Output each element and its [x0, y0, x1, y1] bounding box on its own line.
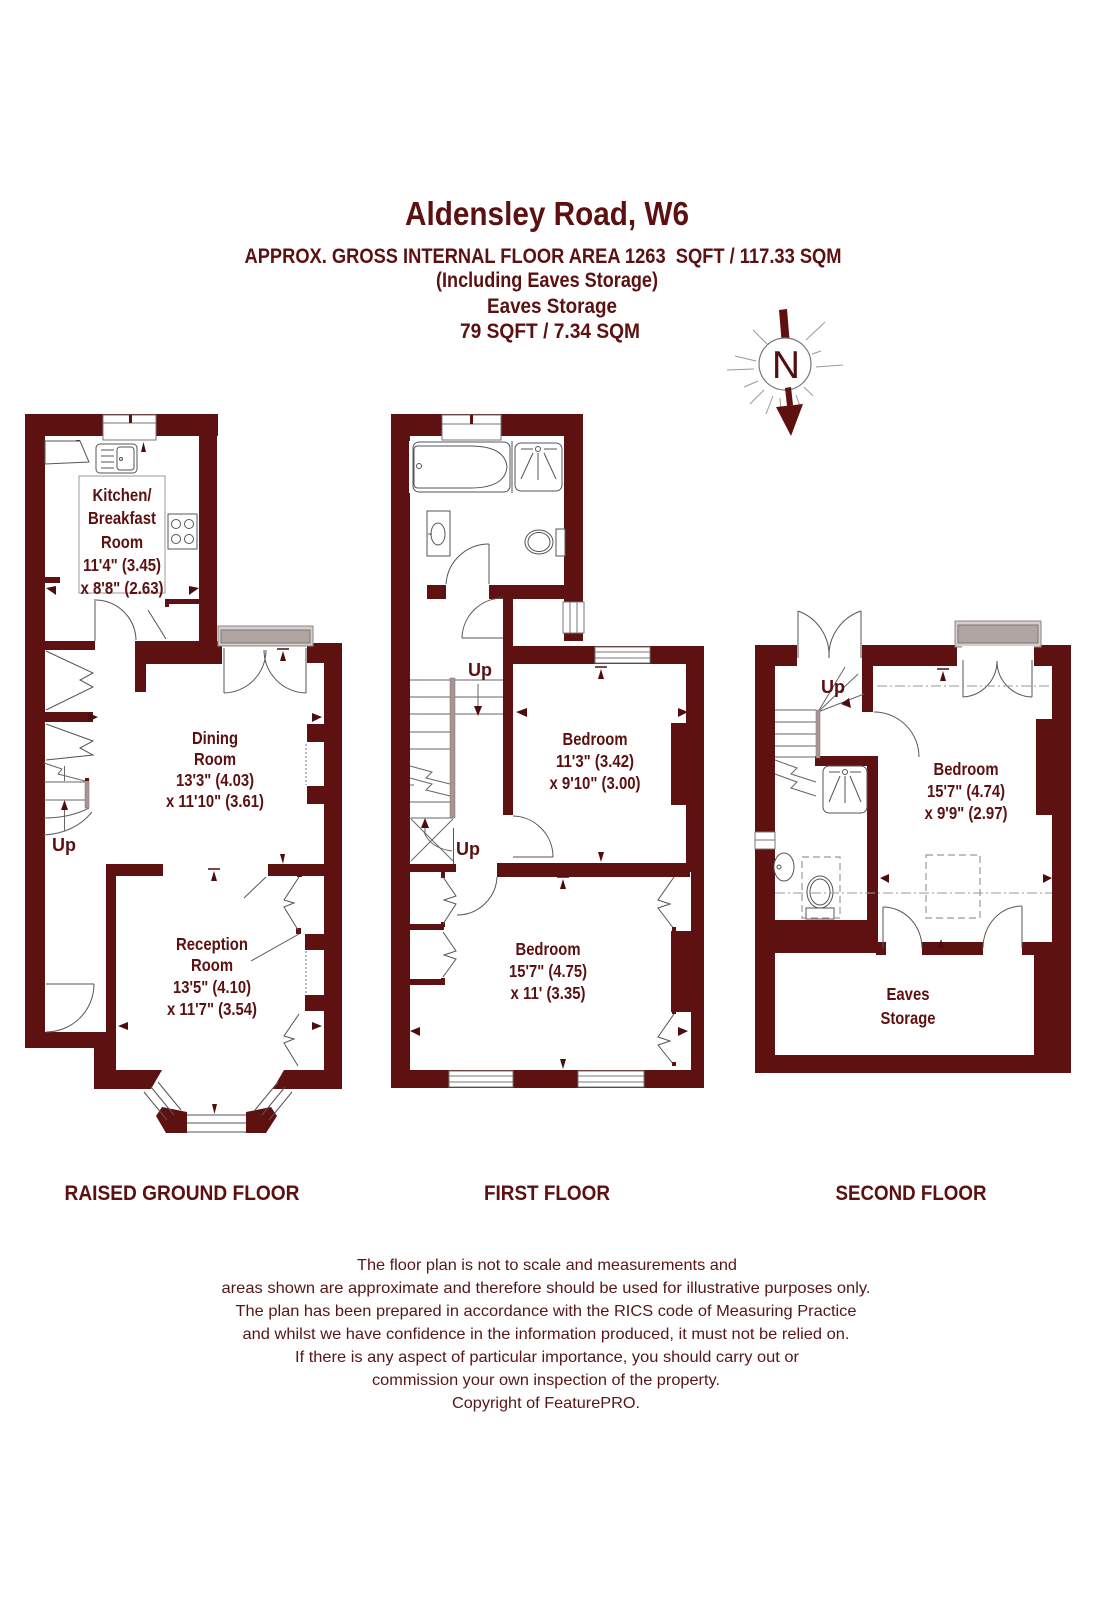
svg-text:Up: Up [468, 660, 492, 680]
svg-text:Eaves Storage: Eaves Storage [487, 295, 617, 318]
svg-text:Storage: Storage [881, 1008, 936, 1028]
svg-text:and whilst we have confidence: and whilst we have confidence in the inf… [243, 1326, 850, 1343]
svg-text:Up: Up [456, 839, 480, 859]
svg-text:APPROX. GROSS INTERNAL FLOOR A: APPROX. GROSS INTERNAL FLOOR AREA 1263 S… [245, 245, 842, 268]
svg-text:79 SQFT / 7.34 SQM: 79 SQFT / 7.34 SQM [460, 320, 640, 343]
svg-text:Dining: Dining [192, 728, 238, 748]
svg-text:Up: Up [52, 835, 76, 855]
svg-text:x 9'10" (3.00): x 9'10" (3.00) [550, 773, 641, 793]
svg-text:x 9'9" (2.97): x 9'9" (2.97) [925, 803, 1008, 823]
svg-text:x 11'7" (3.54): x 11'7" (3.54) [167, 999, 257, 1019]
svg-text:11'4" (3.45): 11'4" (3.45) [83, 555, 161, 575]
svg-text:Bedroom: Bedroom [516, 939, 581, 959]
svg-text:The plan has been prepared in: The plan has been prepared in accordance… [236, 1303, 857, 1320]
svg-text:Reception: Reception [176, 934, 248, 954]
svg-text:The floor plan is not to scale: The floor plan is not to scale and measu… [357, 1257, 737, 1274]
svg-text:SECOND FLOOR: SECOND FLOOR [836, 1182, 987, 1205]
svg-text:commission your own inspection: commission your own inspection of the pr… [372, 1372, 720, 1389]
svg-text:15'7" (4.75): 15'7" (4.75) [509, 961, 587, 981]
svg-text:x 11'10" (3.61): x 11'10" (3.61) [166, 791, 264, 811]
svg-text:Bedroom: Bedroom [563, 729, 628, 749]
svg-text:11'3" (3.42): 11'3" (3.42) [556, 751, 634, 771]
svg-text:Copyright of FeaturePRO.: Copyright of FeaturePRO. [452, 1395, 640, 1412]
svg-text:x 8'8" (2.63): x 8'8" (2.63) [81, 578, 164, 598]
svg-text:RAISED GROUND FLOOR: RAISED GROUND FLOOR [65, 1182, 300, 1205]
svg-text:Eaves: Eaves [887, 984, 930, 1004]
svg-text:areas shown are approximate an: areas shown are approximate and therefor… [222, 1280, 871, 1297]
svg-text:FIRST FLOOR: FIRST FLOOR [484, 1182, 610, 1205]
svg-text:Up: Up [821, 677, 845, 697]
svg-text:x 11' (3.35): x 11' (3.35) [511, 983, 586, 1003]
svg-text:13'5" (4.10): 13'5" (4.10) [173, 977, 251, 997]
svg-text:If there is any aspect of part: If there is any aspect of particular imp… [295, 1349, 800, 1366]
svg-text:Aldensley Road, W6: Aldensley Road, W6 [405, 195, 689, 232]
svg-text:Kitchen/: Kitchen/ [93, 485, 152, 505]
svg-text:Room: Room [194, 749, 236, 769]
svg-text:Room: Room [191, 955, 233, 975]
svg-text:15'7" (4.74): 15'7" (4.74) [927, 781, 1005, 801]
svg-text:Room: Room [101, 532, 143, 552]
svg-text:Bedroom: Bedroom [934, 759, 999, 779]
svg-text:Breakfast: Breakfast [88, 508, 156, 528]
svg-text:13'3" (4.03): 13'3" (4.03) [176, 770, 254, 790]
svg-text:N: N [772, 344, 800, 387]
svg-text:(Including Eaves Storage): (Including Eaves Storage) [436, 269, 658, 292]
